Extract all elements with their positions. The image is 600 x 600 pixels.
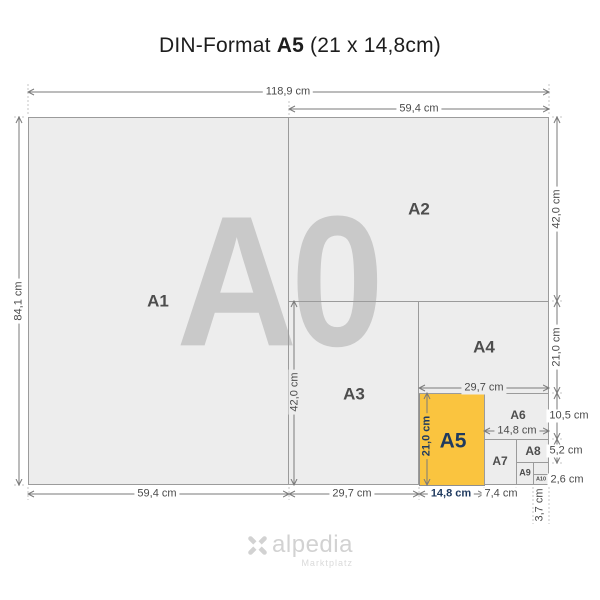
dim-right-a4-height: 21,0 cm	[551, 324, 564, 369]
dim-bottom-a7-width: 7,4 cm	[481, 488, 520, 501]
watermark-a0: A0	[176, 189, 377, 375]
label-a5: A5	[440, 431, 467, 452]
label-a8: A8	[525, 445, 540, 457]
dim-top-total: 118,9 cm	[263, 86, 313, 99]
dim-left-height: 84,1 cm	[13, 278, 26, 323]
dim-right-a2-height: 42,0 cm	[551, 186, 564, 231]
dim-bottom-a10-width: 3,7 cm	[534, 485, 547, 524]
label-a4: A4	[473, 339, 495, 356]
label-a6: A6	[510, 409, 525, 421]
dim-right-a8-height: 5,2 cm	[546, 445, 585, 458]
footer-logo: alpedia Marktplatz	[0, 532, 600, 568]
logo-wordmark: alpedia	[272, 532, 353, 557]
dim-inner-a5-height: 21,0 cm	[421, 413, 434, 459]
dim-bottom-a3-width: 29,7 cm	[329, 488, 374, 501]
dim-inner-a3-height: 42,0 cm	[289, 369, 302, 414]
label-a2: A2	[408, 201, 430, 218]
title-size: (21 x 14,8cm)	[310, 34, 441, 57]
dim-inner-a6-width: 14,8 cm	[494, 425, 539, 438]
din-format-infographic: DIN-Format A5 (21 x 14,8cm) A0	[0, 0, 600, 600]
label-a10: A10	[536, 477, 546, 483]
dim-right-a6-height: 10,5 cm	[546, 410, 591, 423]
page-title: DIN-Format A5 (21 x 14,8cm)	[0, 34, 600, 58]
title-format: A5	[277, 34, 304, 57]
label-a9: A9	[519, 469, 531, 478]
label-a3: A3	[343, 386, 365, 403]
label-a7: A7	[492, 455, 507, 467]
dim-right-a10-height: 2,6 cm	[547, 474, 586, 487]
title-prefix: DIN-Format	[159, 34, 271, 57]
dim-inner-a4-width: 29,7 cm	[461, 382, 506, 395]
dim-top-half: 59,4 cm	[396, 103, 441, 116]
dim-bottom-a5-width: 14,8 cm	[428, 488, 474, 501]
logo-tagline: Marktplatz	[301, 558, 353, 568]
alpedia-logo-icon	[247, 535, 268, 556]
dim-bottom-a1-width: 59,4 cm	[134, 488, 179, 501]
label-a1: A1	[147, 293, 169, 310]
